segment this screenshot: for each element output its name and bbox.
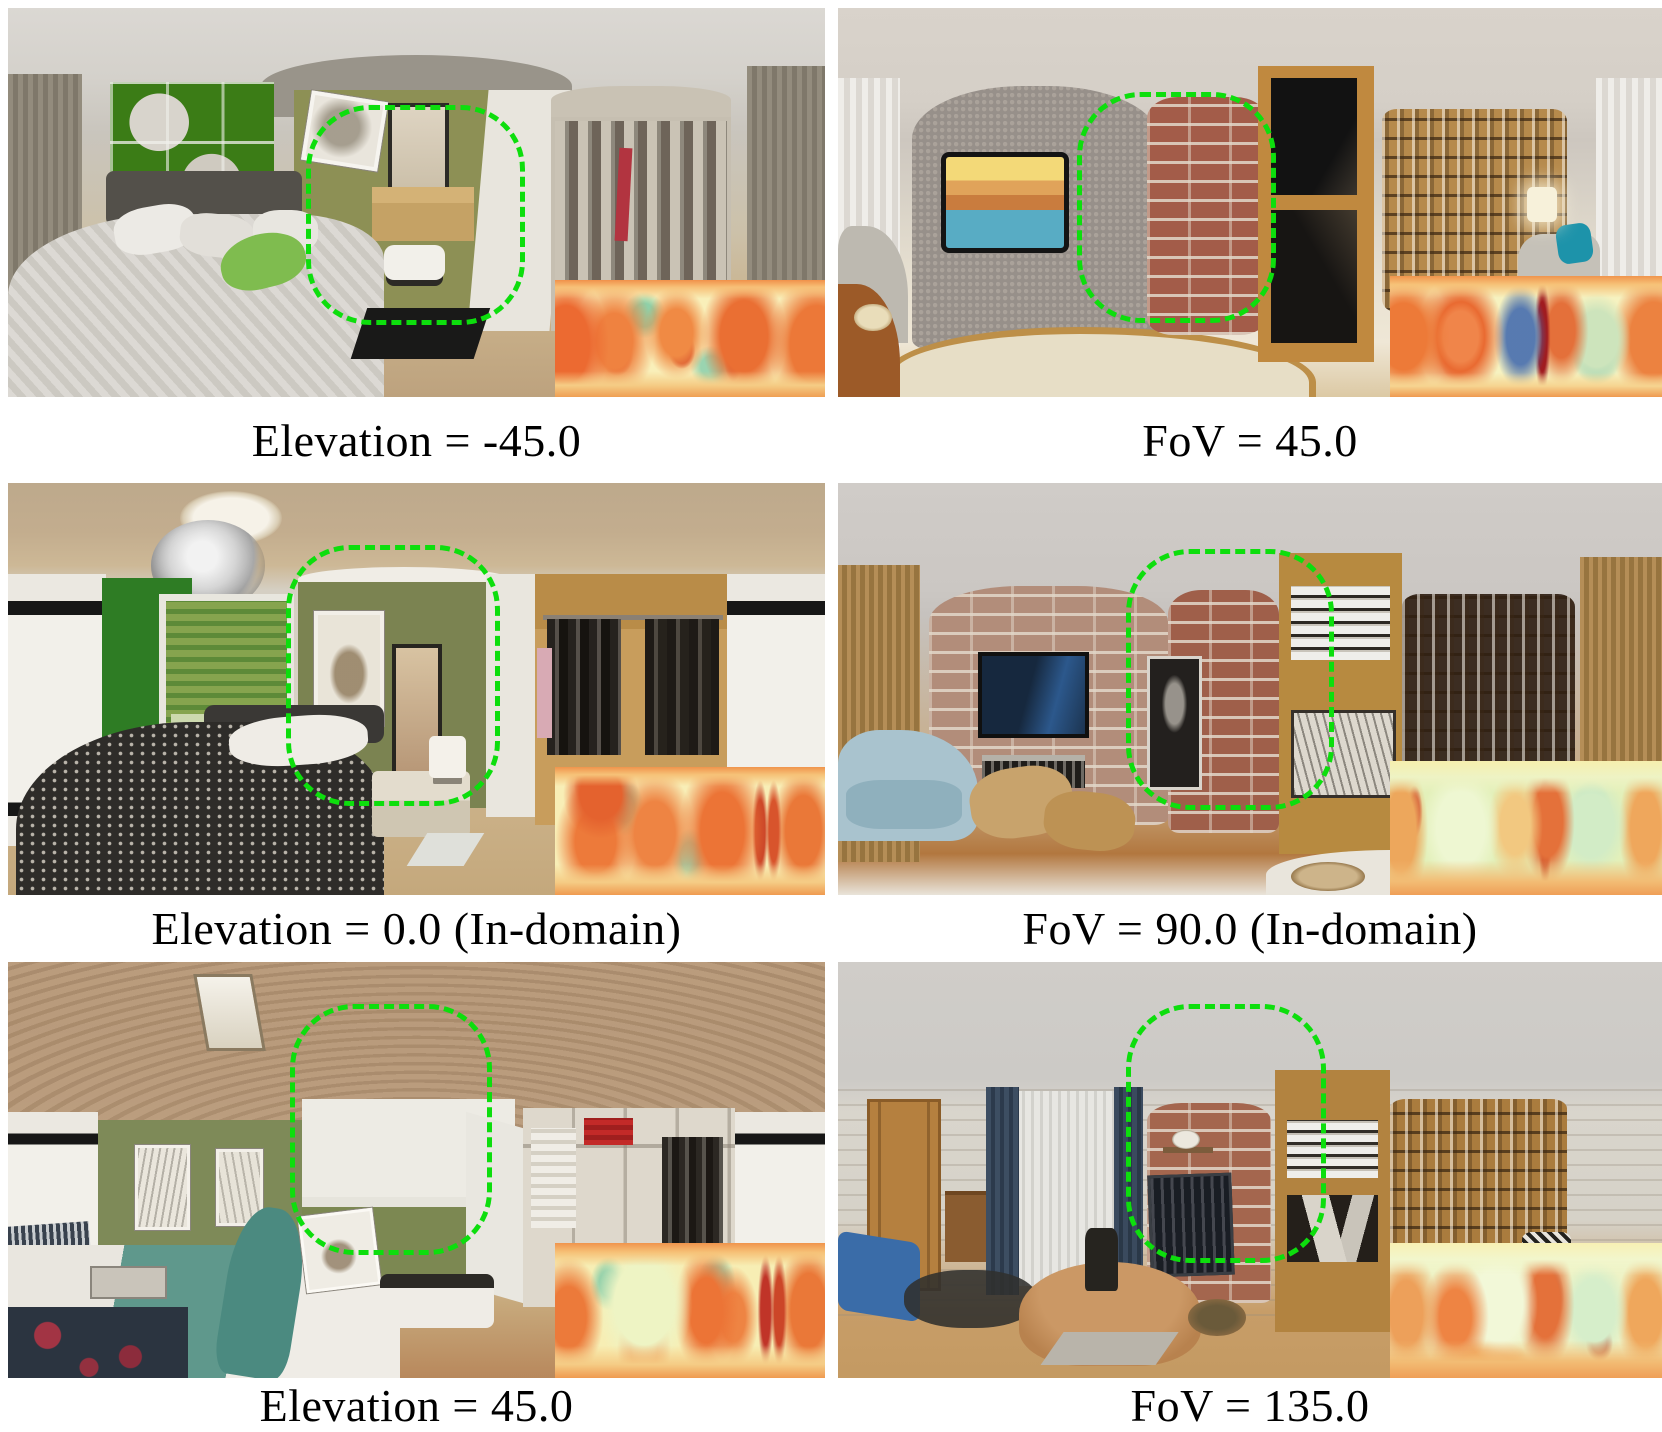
teal-pillow [1555, 222, 1595, 265]
hanging-clothes [645, 619, 719, 755]
panorama-elevation-neg45 [8, 8, 825, 397]
platter [1291, 862, 1365, 891]
papers-on-floor [1041, 1332, 1180, 1365]
cabinet-opening [1271, 78, 1358, 195]
depth-map-inset [1390, 1243, 1662, 1378]
bed-tray [90, 1266, 168, 1299]
cabinet-opening [1271, 210, 1358, 342]
highlight-region [1126, 1004, 1326, 1264]
panorama-elevation-45 [8, 962, 825, 1378]
depth-map-inset [555, 767, 825, 895]
highlight-region [1077, 92, 1277, 324]
plate [854, 304, 891, 331]
depth-map-inset [1390, 276, 1662, 397]
panorama-fov-135 [838, 962, 1662, 1378]
highlight-region [290, 1004, 492, 1255]
hanging-clothes [662, 1137, 723, 1245]
highlight-region [286, 545, 500, 806]
panorama-elevation-0 [8, 483, 825, 895]
depth-map-inset [555, 280, 825, 397]
tv-screen [941, 152, 1069, 253]
pink-garment [537, 648, 552, 739]
caption-fov-90: FoV = 90.0 (In-domain) [838, 895, 1662, 962]
plant [1188, 1299, 1246, 1336]
nightstand [380, 1274, 494, 1328]
panorama-fov-90 [838, 483, 1662, 895]
folded-linens [531, 1128, 576, 1228]
highlight-region [1126, 549, 1334, 810]
depth-map-inset [1390, 761, 1662, 895]
caption-elevation-0: Elevation = 0.0 (In-domain) [8, 895, 825, 962]
panorama-fov-45 [838, 8, 1662, 397]
framed-sketch [135, 1145, 190, 1230]
sofa-seat [846, 780, 961, 829]
blue-drape-left [986, 1087, 1019, 1295]
highlight-region [306, 105, 524, 325]
small-cabinet [945, 1191, 986, 1262]
tv-screen [978, 652, 1089, 739]
caption-elevation-45: Elevation = 45.0 [8, 1378, 825, 1432]
hanging-clothes [547, 619, 621, 755]
dark-clutter [904, 1270, 1036, 1328]
caption-fov-135: FoV = 135.0 [838, 1378, 1662, 1432]
depth-map-inset [555, 1243, 825, 1378]
wall-lamp [1527, 187, 1557, 222]
patterned-rug [8, 1307, 188, 1378]
red-folded-clothes [584, 1118, 633, 1145]
floor-mat [406, 833, 484, 866]
caption-fov-45: FoV = 45.0 [838, 397, 1662, 483]
caption-elevation-neg45: Elevation = -45.0 [8, 397, 825, 483]
figure-grid: Elevation = -45.0 FoV = 45.0 [0, 0, 1662, 1432]
wardrobe-top [551, 86, 731, 121]
table-lamp [1085, 1228, 1118, 1290]
